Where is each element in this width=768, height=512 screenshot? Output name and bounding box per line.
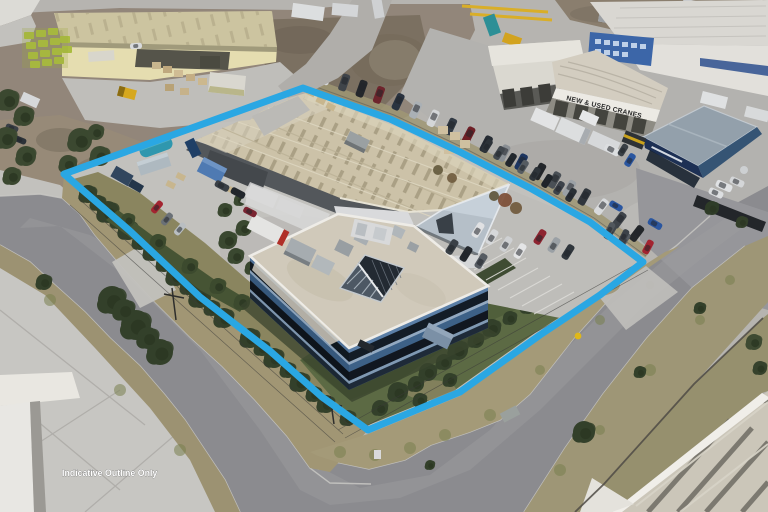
svg-text:Indicative Outline Only: Indicative Outline Only: [62, 468, 157, 478]
